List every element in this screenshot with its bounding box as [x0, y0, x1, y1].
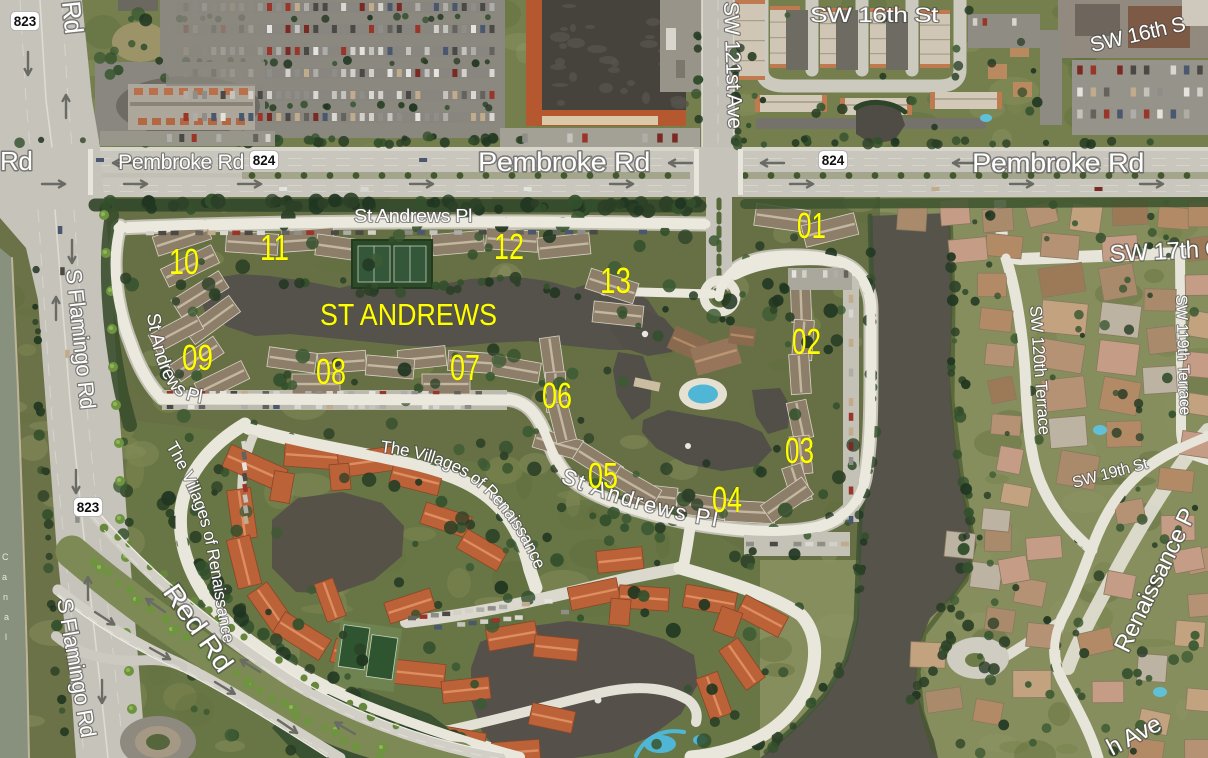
svg-text:Pembroke Rd: Pembroke Rd [118, 151, 244, 174]
svg-text:06: 06 [542, 375, 572, 416]
svg-text:823: 823 [77, 500, 100, 515]
svg-text:10: 10 [169, 241, 199, 282]
svg-text:04: 04 [712, 479, 742, 520]
svg-text:St Andrews Pl: St Andrews Pl [354, 206, 472, 226]
svg-text:Pembroke Rd: Pembroke Rd [478, 147, 650, 177]
svg-text:SW 121st Ave: SW 121st Ave [719, 1, 746, 128]
svg-text:02: 02 [792, 321, 821, 362]
svg-text:n: n [3, 592, 8, 602]
svg-text:01: 01 [797, 205, 826, 246]
svg-text:C: C [2, 552, 9, 562]
svg-text:11: 11 [260, 227, 289, 268]
svg-text:823: 823 [14, 14, 37, 29]
svg-text:07: 07 [450, 347, 480, 388]
svg-text:12: 12 [494, 226, 524, 267]
svg-text:09: 09 [182, 337, 213, 378]
svg-text:Rd: Rd [56, 0, 89, 35]
svg-text:824: 824 [822, 153, 845, 168]
svg-text:13: 13 [600, 260, 631, 301]
svg-text:03: 03 [785, 430, 814, 471]
svg-text:SW 17th C: SW 17th C [1109, 235, 1208, 268]
svg-text:a: a [2, 572, 7, 582]
svg-text:ST ANDREWS: ST ANDREWS [320, 297, 497, 332]
svg-text:08: 08 [316, 351, 346, 392]
svg-text:SW 16th St: SW 16th St [810, 4, 939, 27]
svg-text:l: l [5, 632, 7, 642]
svg-text:05: 05 [588, 455, 618, 496]
svg-text:Pembroke Rd: Pembroke Rd [972, 148, 1144, 178]
svg-text:a: a [4, 612, 9, 622]
svg-text:Rd: Rd [0, 146, 32, 176]
svg-text:824: 824 [253, 153, 276, 168]
